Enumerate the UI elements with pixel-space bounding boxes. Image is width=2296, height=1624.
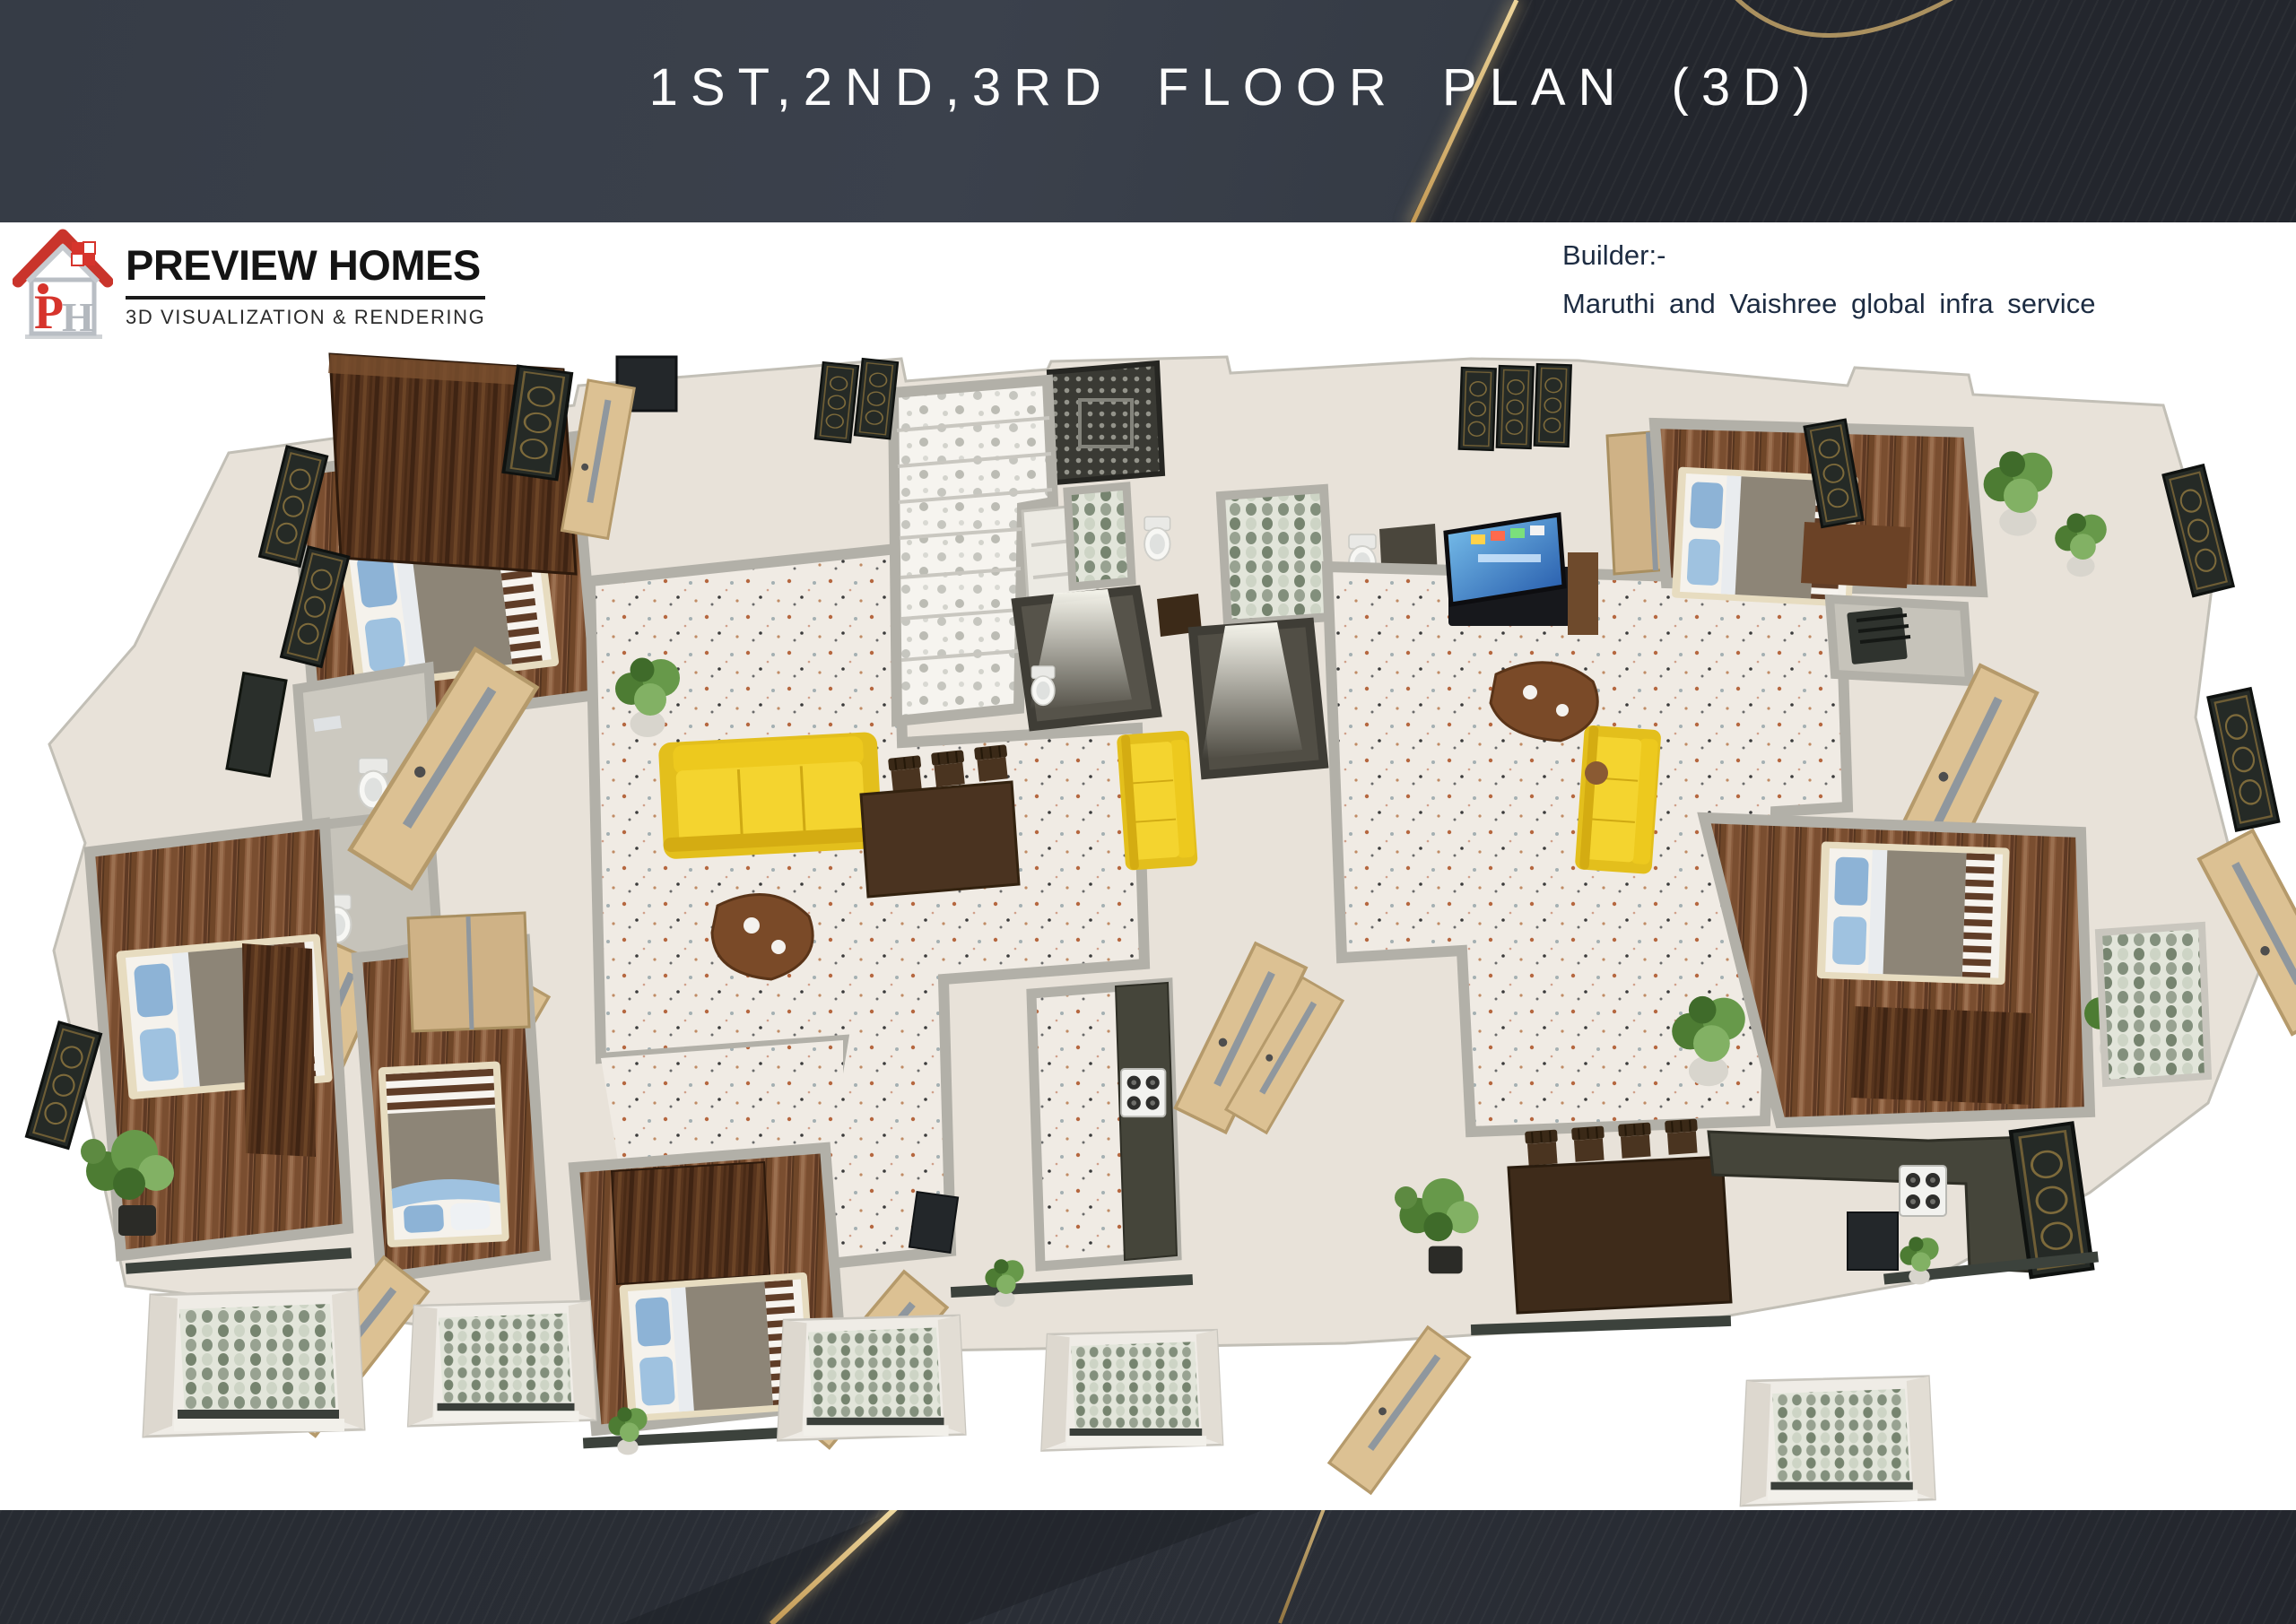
builder-label: Builder:- xyxy=(1562,231,2095,280)
gold-diagonal-accent-footer-2 xyxy=(1278,1510,1325,1624)
balcony-attached-right xyxy=(2099,925,2208,1083)
footer-band xyxy=(0,1510,2296,1624)
dresser xyxy=(1849,1006,2034,1105)
page-title: 1ST,2ND,3RD FLOOR PLAN (3D) xyxy=(649,57,1823,117)
logo-tagline: 3D VISUALIZATION & RENDERING xyxy=(126,306,485,329)
dresser xyxy=(242,943,316,1157)
company-logo: P H PREVIEW HOMES 3D VISUALIZATION & REN… xyxy=(13,226,485,343)
logo-house-icon: P H xyxy=(13,226,113,343)
sofa-yellow-right xyxy=(1575,725,1662,874)
bedroom-bottom-left-2 xyxy=(357,913,545,1278)
floor-plan-illustration xyxy=(0,350,2296,1515)
builder-info: Builder:- Maruthi and Vaishree global in… xyxy=(1562,231,2095,328)
sofa-yellow-left xyxy=(658,732,883,860)
desk xyxy=(1801,522,1910,588)
perforated-shaft-screen xyxy=(1049,363,1162,482)
footer-carbon-wedge xyxy=(0,1510,2296,1624)
floor-plan-render xyxy=(0,350,2296,1515)
dark-bathroom-left xyxy=(1016,589,1157,726)
builder-name: Maruthi and Vaishree global infra servic… xyxy=(1562,280,2095,328)
logo-letter-h: H xyxy=(62,294,94,340)
header-band: 1ST,2ND,3RD FLOOR PLAN (3D) xyxy=(0,0,2296,222)
logo-checker-window xyxy=(72,242,95,265)
logo-letter-p: P xyxy=(34,285,64,339)
logo-company-name: PREVIEW HOMES xyxy=(126,240,485,300)
sofa-yellow-center xyxy=(1117,730,1198,871)
